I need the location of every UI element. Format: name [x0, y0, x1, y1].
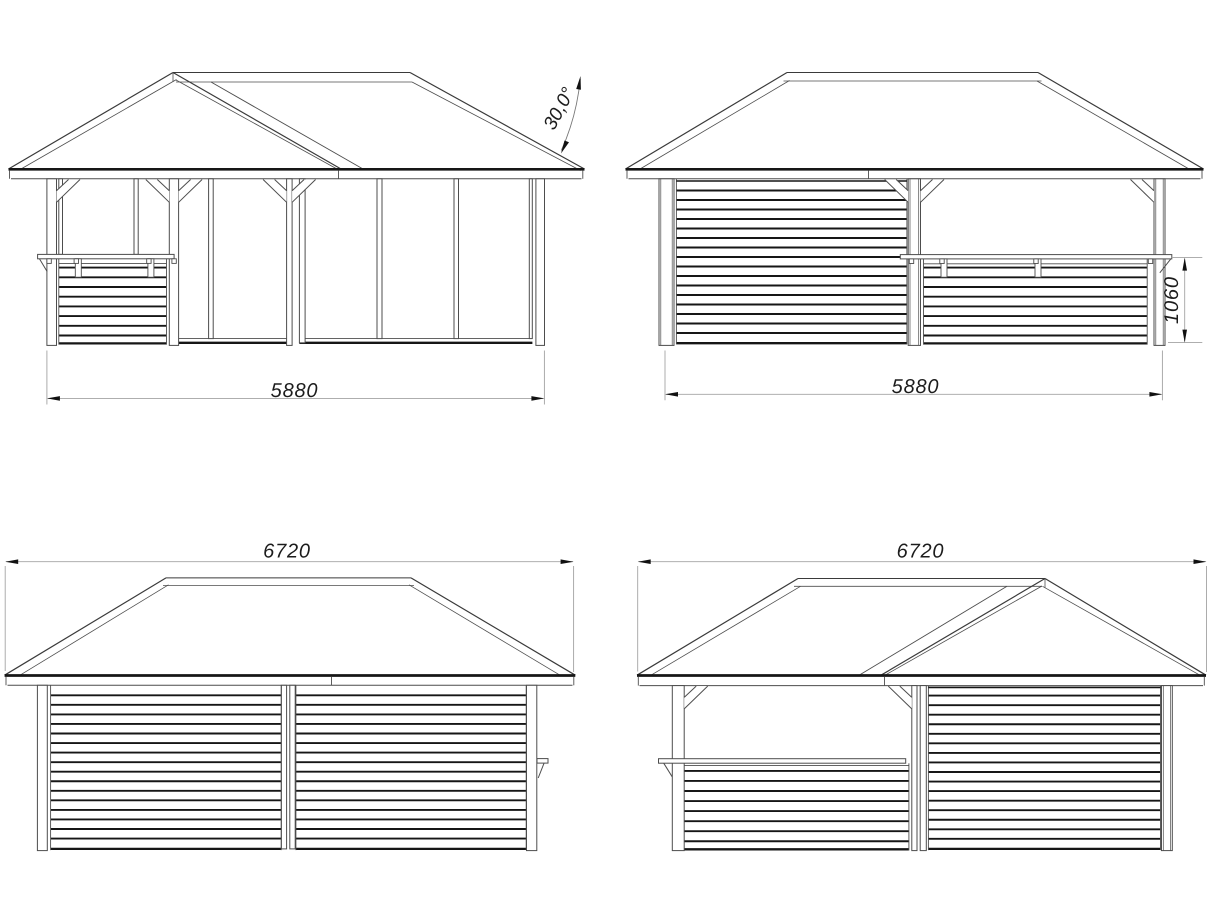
- svg-text:6720: 6720: [897, 540, 945, 562]
- svg-text:6720: 6720: [263, 540, 311, 562]
- svg-text:5880: 5880: [892, 376, 940, 398]
- svg-text:5880: 5880: [271, 380, 319, 402]
- svg-text:1060: 1060: [1161, 276, 1183, 324]
